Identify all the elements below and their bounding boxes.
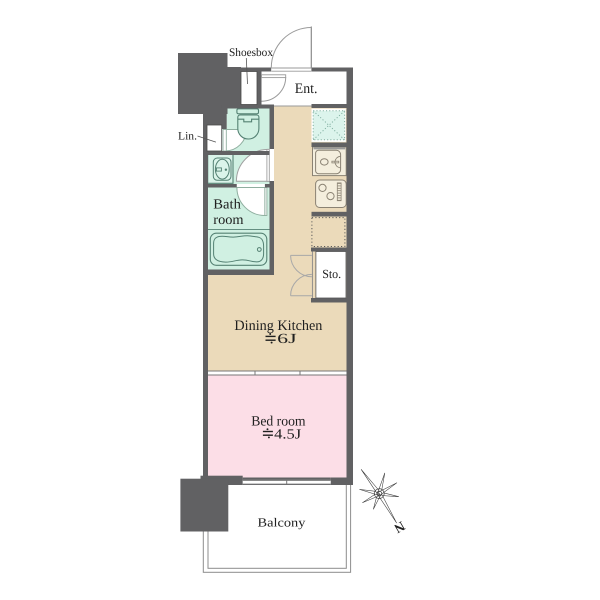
svg-text:Bath: Bath xyxy=(213,197,241,212)
svg-text:4.5J: 4.5J xyxy=(274,427,302,442)
svg-text:Lin.: Lin. xyxy=(178,130,197,142)
svg-text:Shoesbox: Shoesbox xyxy=(229,47,273,59)
svg-text:Ent.: Ent. xyxy=(295,81,318,97)
svg-text:6J: 6J xyxy=(277,332,297,347)
svg-text:room: room xyxy=(213,213,243,228)
svg-text:Balcony: Balcony xyxy=(258,516,307,530)
svg-text:Sto.: Sto. xyxy=(322,267,341,281)
